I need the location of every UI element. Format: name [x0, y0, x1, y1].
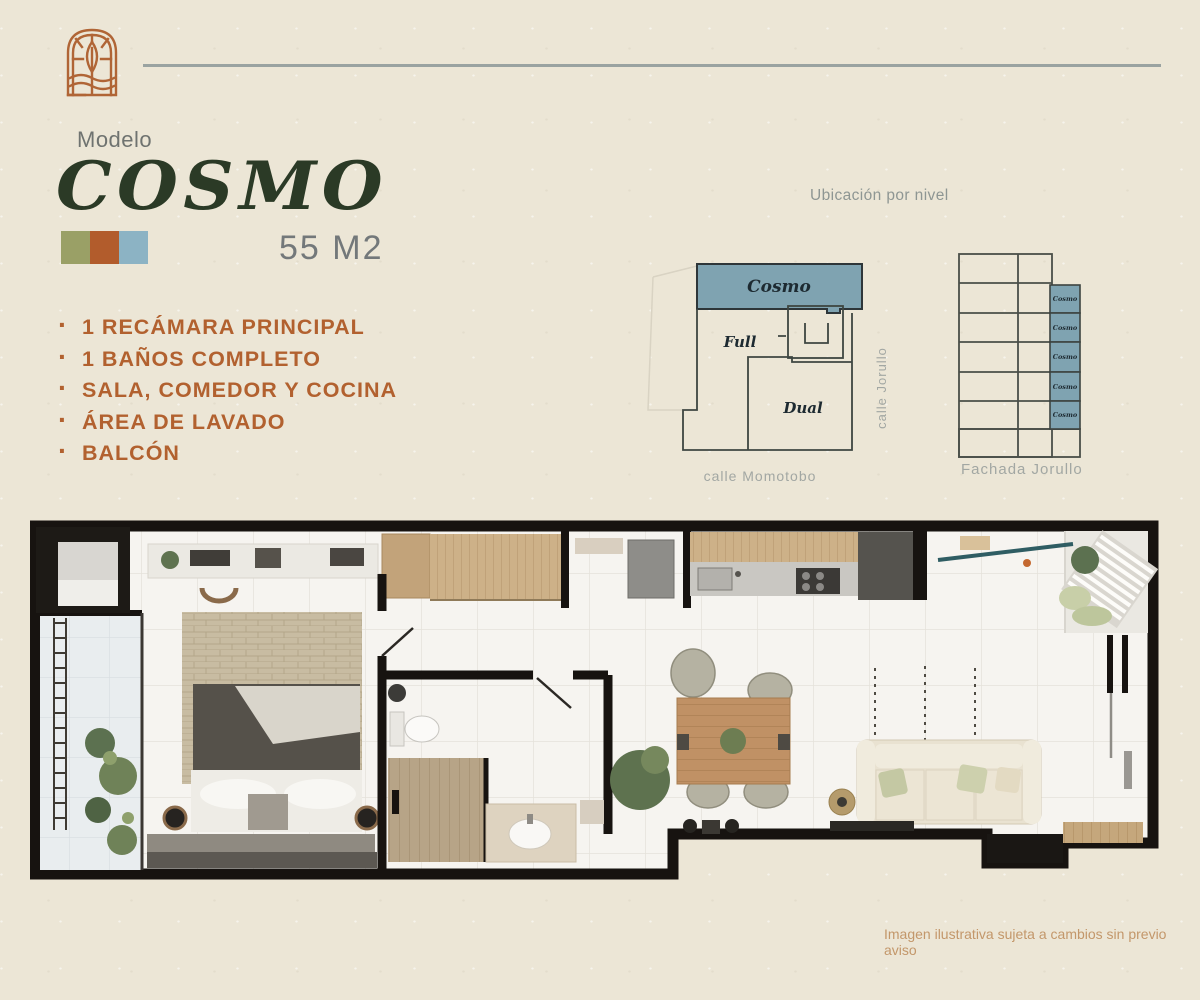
bed-bench — [147, 834, 375, 852]
facade-base — [959, 429, 1080, 457]
balcony-plant — [1071, 546, 1099, 574]
feature-item: ·SALA, COMEDOR Y COCINA — [58, 372, 397, 404]
bath-mat — [580, 800, 604, 824]
feature-text: 1 RECÁMARA PRINCIPAL — [82, 315, 365, 340]
facade-cell-label: Cosmo — [1053, 353, 1078, 361]
unit-dual-label: Dual — [782, 399, 823, 417]
balcony-left — [40, 613, 142, 870]
facade-cell-label: Cosmo — [1053, 411, 1078, 419]
stairs-glyph — [778, 323, 828, 343]
unit-cosmo-label: Cosmo — [747, 277, 811, 297]
swatch-olive — [61, 231, 90, 264]
unit-full-label: Full — [723, 333, 757, 351]
street-momotobo-label: calle Momotobo — [704, 468, 817, 484]
washer — [628, 540, 674, 598]
kitchen — [690, 526, 927, 600]
feature-item: ·1 BAÑOS COMPLETO — [58, 341, 397, 373]
swatch-blue — [119, 231, 148, 264]
fridge-column — [858, 532, 913, 600]
bed-ottoman — [248, 794, 288, 830]
feature-item: ·BALCÓN — [58, 435, 397, 467]
bullet-dot: · — [58, 341, 82, 373]
desk-plant — [161, 551, 179, 569]
feature-text: 1 BAÑOS COMPLETO — [82, 347, 321, 372]
closet — [430, 534, 565, 600]
model-area: 55 M2 — [279, 229, 384, 268]
door-handle — [1124, 751, 1132, 789]
tv — [830, 821, 914, 831]
shower — [388, 758, 486, 862]
facade-caption: Fachada Jorullo — [961, 461, 1083, 478]
disclaimer-text: Imagen ilustrativa sujeta a cambios sin … — [884, 926, 1200, 958]
feature-text: SALA, COMEDOR Y COCINA — [82, 378, 397, 403]
parcel-outline — [648, 266, 697, 410]
feature-list: ·1 RECÁMARA PRINCIPAL ·1 BAÑOS COMPLETO … — [58, 309, 397, 467]
street-jorullo-label: calle Jorullo — [874, 347, 889, 429]
sofa-pillow — [994, 766, 1021, 793]
facade-cell-label: Cosmo — [1053, 324, 1078, 332]
sofa-pillow — [956, 764, 988, 794]
palette-swatches — [61, 231, 148, 264]
brand-logo-icon — [62, 25, 122, 99]
shower-handle — [392, 790, 399, 814]
table-plant — [720, 728, 746, 754]
sofa — [857, 740, 1041, 824]
feature-item: ·ÁREA DE LAVADO — [58, 404, 397, 436]
bullet-dot: · — [58, 309, 82, 341]
facade-cell-label: Cosmo — [1053, 383, 1078, 391]
facade-diagram: Cosmo Cosmo Cosmo Cosmo Cosmo — [930, 245, 1100, 460]
units-outline — [683, 309, 852, 450]
kitchen-sink — [698, 568, 732, 590]
feature-item: ·1 RECÁMARA PRINCIPAL — [58, 309, 397, 341]
closet-laundry — [382, 530, 687, 608]
floor-plan-render — [30, 518, 1160, 912]
entry — [36, 527, 130, 613]
wood-deck — [1063, 822, 1143, 843]
feature-text: ÁREA DE LAVADO — [82, 410, 286, 435]
bullet-dot: · — [58, 435, 82, 467]
laundry-shelf — [575, 538, 623, 554]
header-divider — [143, 64, 1161, 67]
level-map-diagram: Cosmo Full Dual calle Jorullo calle Momo… — [640, 250, 900, 490]
facade-cell-label: Cosmo — [1053, 295, 1078, 303]
toilet-tank — [390, 712, 404, 746]
bullet-dot: · — [58, 372, 82, 404]
speaker-right — [356, 807, 378, 829]
toilet — [405, 716, 439, 742]
upper-cabinets — [690, 532, 858, 562]
sofa-pillow — [878, 768, 909, 799]
speaker-left — [164, 807, 186, 829]
feature-text: BALCÓN — [82, 441, 180, 466]
bullet-dot: · — [58, 404, 82, 436]
wardrobe — [382, 534, 430, 598]
model-name: COSMO — [56, 147, 388, 225]
facade-outline — [959, 254, 1052, 457]
swatch-terracotta — [90, 231, 119, 264]
level-map-title: Ubicación por nivel — [810, 187, 949, 205]
